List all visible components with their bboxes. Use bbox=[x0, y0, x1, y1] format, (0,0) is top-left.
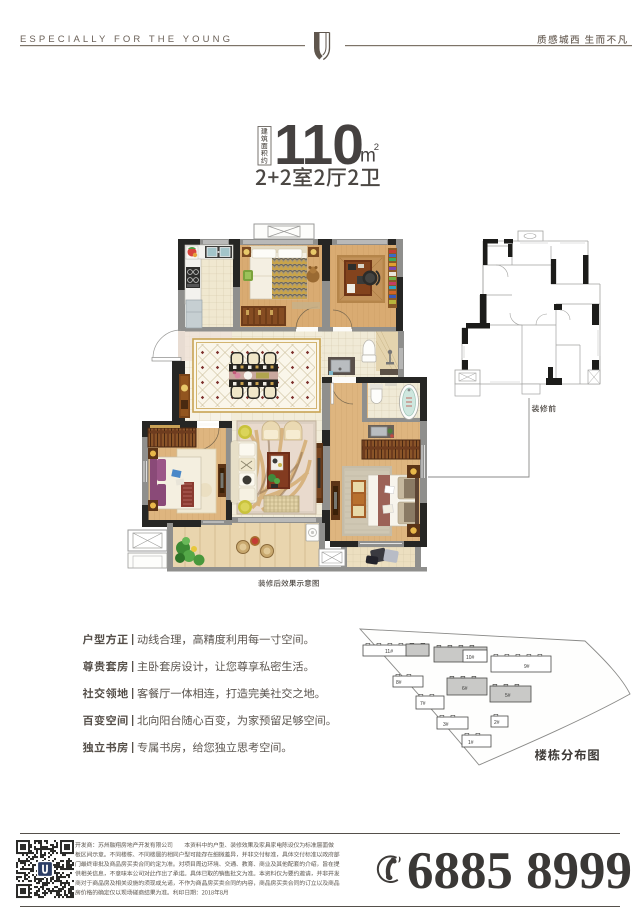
svg-text:ESPECIALLY FOR THE YOUNG: ESPECIALLY FOR THE YOUNG bbox=[20, 34, 233, 45]
svg-text:10#: 10# bbox=[466, 655, 475, 661]
svg-text:8#: 8# bbox=[396, 680, 402, 686]
svg-text:9#: 9# bbox=[524, 664, 530, 670]
svg-text:11#: 11# bbox=[385, 649, 393, 655]
svg-text:6#: 6# bbox=[462, 686, 468, 692]
svg-text:1#: 1# bbox=[468, 740, 474, 746]
svg-text:110: 110 bbox=[274, 113, 363, 177]
svg-text:7#: 7# bbox=[420, 701, 426, 707]
svg-text:3#: 3# bbox=[443, 722, 449, 728]
svg-text:6885 8999: 6885 8999 bbox=[407, 842, 632, 900]
svg-text:2: 2 bbox=[374, 142, 379, 153]
svg-text:5#: 5# bbox=[505, 693, 511, 699]
svg-text:2#: 2# bbox=[494, 720, 500, 726]
